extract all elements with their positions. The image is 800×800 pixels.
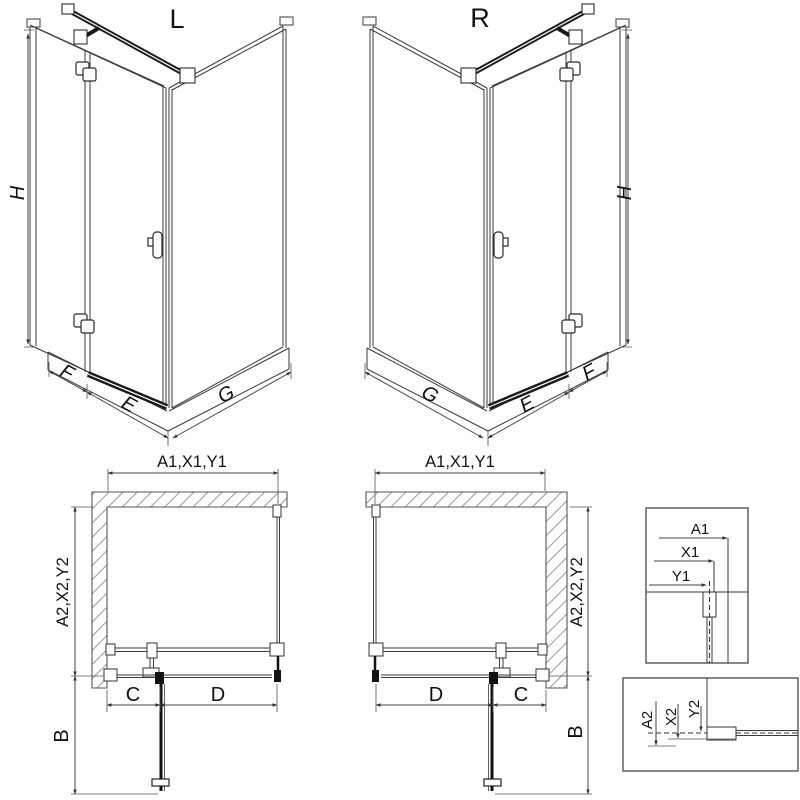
dim-door-left: E	[118, 392, 141, 418]
plan-left-door-dim: D	[211, 684, 225, 706]
plan-right-door-dim: D	[429, 684, 443, 706]
plan-right-fixed-dim: C	[514, 684, 528, 706]
detail-bottom-x: X2	[663, 708, 680, 726]
plan-left-top-dim: A1,X1,Y1	[157, 453, 227, 471]
detail-top-x: X1	[681, 544, 699, 561]
dim-fixed-right: F	[579, 359, 602, 385]
variant-label-right: R	[470, 3, 490, 33]
open-door	[152, 684, 169, 791]
hinges-and-handle	[74, 62, 162, 333]
detail-top-a: A1	[691, 521, 709, 538]
plan-left-swing-dim: B	[51, 729, 73, 742]
plan-enclosure-geometry	[104, 469, 284, 791]
plan-left-side-dim: A2,X2,Y2	[54, 557, 72, 627]
detail-top-y: Y1	[672, 568, 690, 585]
plan-right-swing-dim: B	[565, 725, 587, 738]
plan-left-fixed-dim: C	[126, 684, 140, 706]
detail-bottom-y: Y2	[686, 700, 703, 718]
plan-right-top-dim: A1,X1,Y1	[425, 453, 495, 471]
plan-enclosure-geometry-mirrored	[369, 469, 549, 791]
glass-profile-bottom-detail	[707, 727, 736, 740]
dim-height-right: H	[614, 185, 636, 200]
plan-right-side-dim: A2,X2,Y2	[568, 557, 586, 627]
variant-label-left: L	[169, 4, 184, 34]
shower-enclosure-drawing: L R H H F E G F E G A1,X1,Y1 A1,X1,Y1 A2…	[0, 0, 800, 800]
detail-bottom-a: A2	[639, 711, 656, 729]
wall-hatch-left-plan	[92, 492, 287, 688]
dim-height-left: H	[7, 185, 29, 200]
dim-fixed-left: F	[56, 360, 79, 386]
dim-door-right: E	[516, 392, 539, 418]
wall-hatch-right-plan	[366, 492, 567, 688]
drawing-sheet: L R H H F E G F E G A1,X1,Y1 A1,X1,Y1 A2…	[0, 0, 800, 800]
